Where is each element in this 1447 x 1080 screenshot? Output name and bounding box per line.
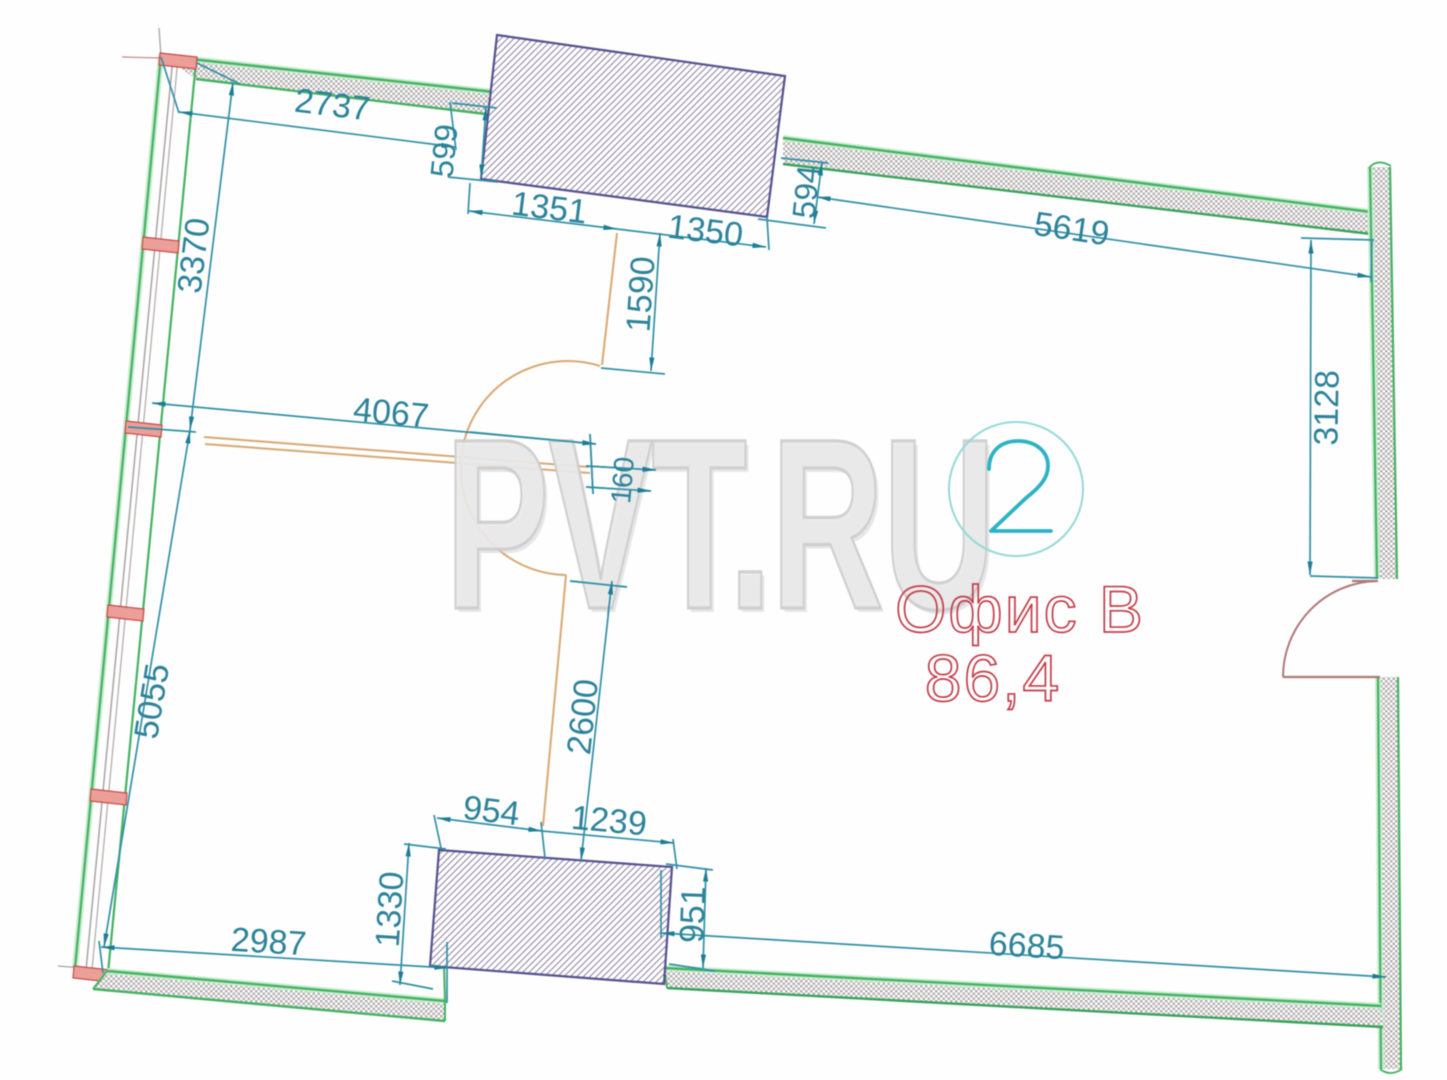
svg-text:1590: 1590 xyxy=(619,255,662,333)
svg-text:2987: 2987 xyxy=(230,921,308,964)
svg-text:2600: 2600 xyxy=(560,677,606,756)
svg-text:Офис В: Офис В xyxy=(895,572,1145,646)
svg-text:6685: 6685 xyxy=(988,925,1066,968)
svg-text:3128: 3128 xyxy=(1307,370,1346,446)
svg-text:160: 160 xyxy=(605,456,640,505)
svg-text:1239: 1239 xyxy=(570,799,649,844)
svg-text:951: 951 xyxy=(673,886,713,944)
svg-text:594: 594 xyxy=(785,163,826,220)
svg-text:86,4: 86,4 xyxy=(925,641,1061,715)
svg-text:4067: 4067 xyxy=(352,391,431,436)
svg-text:599: 599 xyxy=(423,122,464,179)
svg-text:1330: 1330 xyxy=(369,870,412,948)
svg-text:954: 954 xyxy=(461,789,522,834)
